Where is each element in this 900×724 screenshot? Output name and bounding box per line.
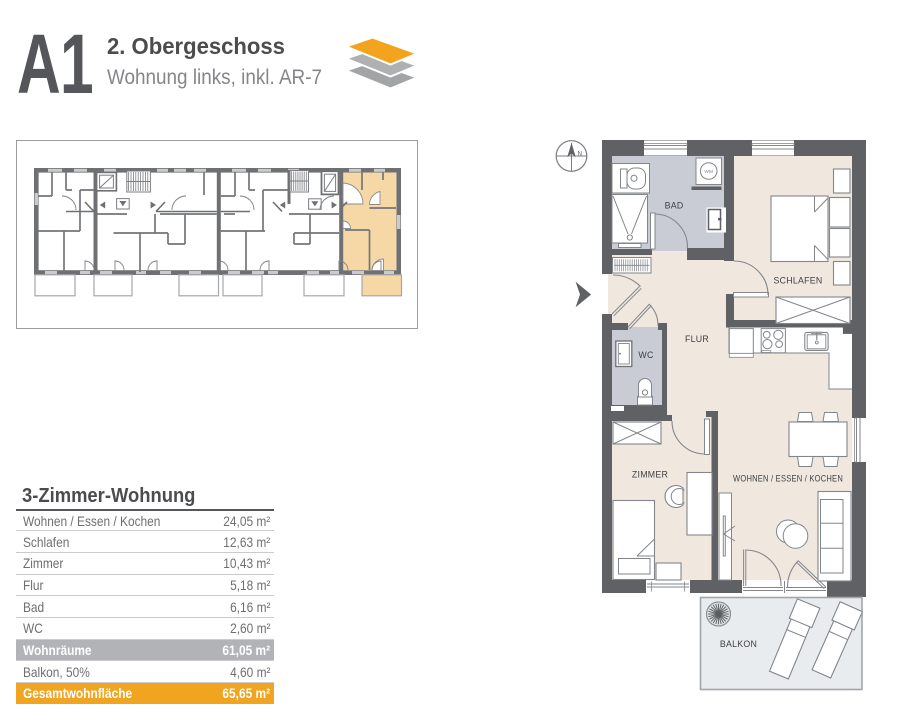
- svg-text:FLUR: FLUR: [685, 334, 709, 344]
- svg-text:ZIMMER: ZIMMER: [632, 470, 668, 480]
- svg-text:WC: WC: [638, 350, 654, 360]
- svg-text:WM: WM: [704, 169, 713, 175]
- svg-text:N: N: [578, 151, 582, 158]
- svg-text:SCHLAFEN: SCHLAFEN: [774, 276, 823, 286]
- svg-text:WOHNEN / ESSEN / KOCHEN: WOHNEN / ESSEN / KOCHEN: [733, 474, 843, 484]
- svg-text:BALKON: BALKON: [720, 639, 757, 649]
- svg-text:BAD: BAD: [665, 201, 684, 211]
